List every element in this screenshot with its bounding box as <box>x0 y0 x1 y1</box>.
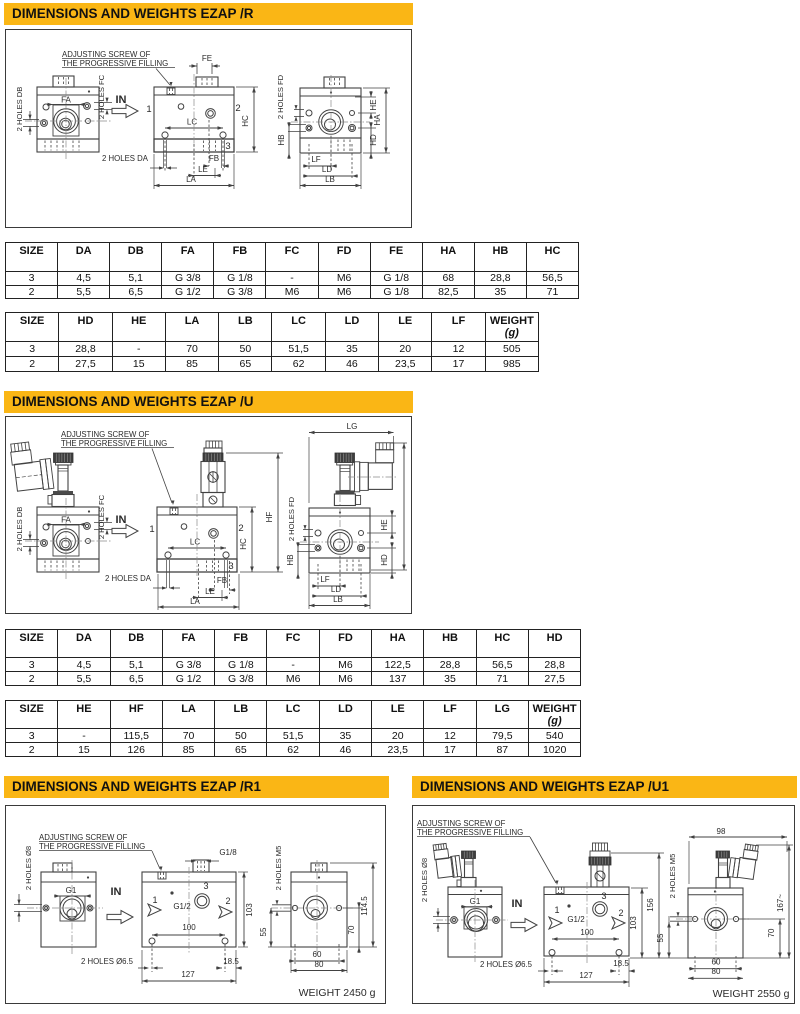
svg-text:THE PROGRESSIVE FILLING: THE PROGRESSIVE FILLING <box>62 59 168 68</box>
svg-text:70: 70 <box>347 925 356 934</box>
svg-text:2 HOLES Ø6.5: 2 HOLES Ø6.5 <box>81 957 134 966</box>
svg-text:80: 80 <box>315 960 324 969</box>
svg-text:2 HOLES Ø6.5: 2 HOLES Ø6.5 <box>480 960 533 969</box>
svg-text:103: 103 <box>245 903 254 917</box>
svg-text:LB: LB <box>333 595 343 604</box>
svg-text:IN: IN <box>512 898 523 910</box>
svg-text:2: 2 <box>238 523 243 534</box>
svg-text:2 HOLES DA: 2 HOLES DA <box>105 574 152 583</box>
svg-text:ADJUSTING SCREW OF: ADJUSTING SCREW OF <box>39 833 128 842</box>
svg-text:G1/8: G1/8 <box>219 848 237 857</box>
svg-text:80: 80 <box>712 967 721 976</box>
svg-text:LC: LC <box>187 118 197 127</box>
svg-text:127: 127 <box>579 971 593 980</box>
svg-text:WEIGHT 2450 g: WEIGHT 2450 g <box>299 987 376 999</box>
svg-text:ADJUSTING SCREW OF: ADJUSTING SCREW OF <box>61 430 150 439</box>
svg-text:2 HOLES M5: 2 HOLES M5 <box>274 846 283 891</box>
svg-text:1: 1 <box>149 524 154 535</box>
svg-text:LA: LA <box>190 597 200 606</box>
svg-text:2 HOLES FC: 2 HOLES FC <box>97 494 106 539</box>
svg-text:LG: LG <box>347 422 358 431</box>
svg-text:2 HOLES Ø8: 2 HOLES Ø8 <box>24 846 33 890</box>
svg-text:60: 60 <box>313 950 322 959</box>
svg-text:3: 3 <box>203 881 208 891</box>
svg-text:2 HOLES M5: 2 HOLES M5 <box>668 854 677 899</box>
svg-text:FA: FA <box>61 516 71 525</box>
svg-text:G1: G1 <box>66 886 77 895</box>
svg-text:HB: HB <box>286 554 295 565</box>
svg-text:3: 3 <box>225 141 230 152</box>
svg-text:2: 2 <box>618 908 623 918</box>
svg-text:LD: LD <box>322 165 332 174</box>
svg-text:103: 103 <box>629 916 638 930</box>
svg-text:2 HOLES FD: 2 HOLES FD <box>287 496 296 541</box>
svg-text:LE: LE <box>205 587 215 596</box>
svg-text:156: 156 <box>646 898 655 912</box>
svg-text:G1/2: G1/2 <box>173 902 191 911</box>
svg-text:98: 98 <box>717 827 726 836</box>
svg-text:LD: LD <box>331 585 341 594</box>
svg-text:55: 55 <box>656 933 665 942</box>
svg-text:FA: FA <box>61 96 71 105</box>
svg-text:LF: LF <box>320 575 329 584</box>
svg-text:60: 60 <box>712 958 721 967</box>
svg-text:FE: FE <box>202 54 212 63</box>
svg-text:THE PROGRESSIVE FILLING: THE PROGRESSIVE FILLING <box>39 842 145 851</box>
svg-text:FB: FB <box>209 154 219 163</box>
svg-text:3: 3 <box>601 891 606 901</box>
svg-text:2 HOLES FD: 2 HOLES FD <box>276 74 285 119</box>
svg-text:18.5: 18.5 <box>613 959 629 968</box>
svg-text:THE PROGRESSIVE FILLING: THE PROGRESSIVE FILLING <box>61 439 167 448</box>
svg-text:ADJUSTING SCREW OF: ADJUSTING SCREW OF <box>62 50 151 59</box>
svg-text:2 HOLES DB: 2 HOLES DB <box>15 507 24 552</box>
svg-text:1: 1 <box>146 104 151 115</box>
svg-text:2: 2 <box>235 103 240 114</box>
svg-text:LE: LE <box>198 165 208 174</box>
svg-text:ADJUSTING SCREW OF: ADJUSTING SCREW OF <box>417 819 506 828</box>
svg-text:2 HOLES Ø8: 2 HOLES Ø8 <box>420 858 429 902</box>
svg-text:1: 1 <box>152 895 157 905</box>
svg-text:18.5: 18.5 <box>223 957 239 966</box>
svg-text:127: 127 <box>181 970 195 979</box>
svg-text:114.5: 114.5 <box>360 896 369 916</box>
svg-text:IN: IN <box>116 514 127 526</box>
svg-text:IN: IN <box>111 886 122 898</box>
svg-text:55: 55 <box>259 927 268 936</box>
svg-text:HD: HD <box>369 134 378 146</box>
svg-text:2: 2 <box>225 896 230 906</box>
svg-text:HF: HF <box>265 512 274 523</box>
svg-text:THE PROGRESSIVE FILLING: THE PROGRESSIVE FILLING <box>417 828 523 837</box>
svg-text:HE: HE <box>369 99 378 110</box>
svg-text:LA: LA <box>186 175 196 184</box>
svg-text:HB: HB <box>277 134 286 145</box>
svg-text:LC: LC <box>190 538 200 547</box>
svg-text:HC: HC <box>239 538 248 550</box>
svg-text:IN: IN <box>116 94 127 106</box>
svg-text:FB: FB <box>217 576 227 585</box>
svg-text:70: 70 <box>767 928 776 937</box>
svg-text:2 HOLES FC: 2 HOLES FC <box>97 74 106 119</box>
svg-text:2 HOLES DA: 2 HOLES DA <box>102 154 149 163</box>
svg-text:LF: LF <box>311 155 320 164</box>
svg-text:HE: HE <box>380 519 389 530</box>
svg-text:167~: 167~ <box>776 894 785 912</box>
svg-text:1: 1 <box>554 905 559 915</box>
svg-text:HA: HA <box>373 114 382 126</box>
svg-text:HD: HD <box>380 554 389 566</box>
svg-text:HC: HC <box>241 115 250 127</box>
svg-text:WEIGHT 2550 g: WEIGHT 2550 g <box>713 988 790 1000</box>
svg-text:2 HOLES DB: 2 HOLES DB <box>15 87 24 132</box>
svg-text:G1/2: G1/2 <box>567 915 585 924</box>
svg-text:LB: LB <box>325 175 335 184</box>
